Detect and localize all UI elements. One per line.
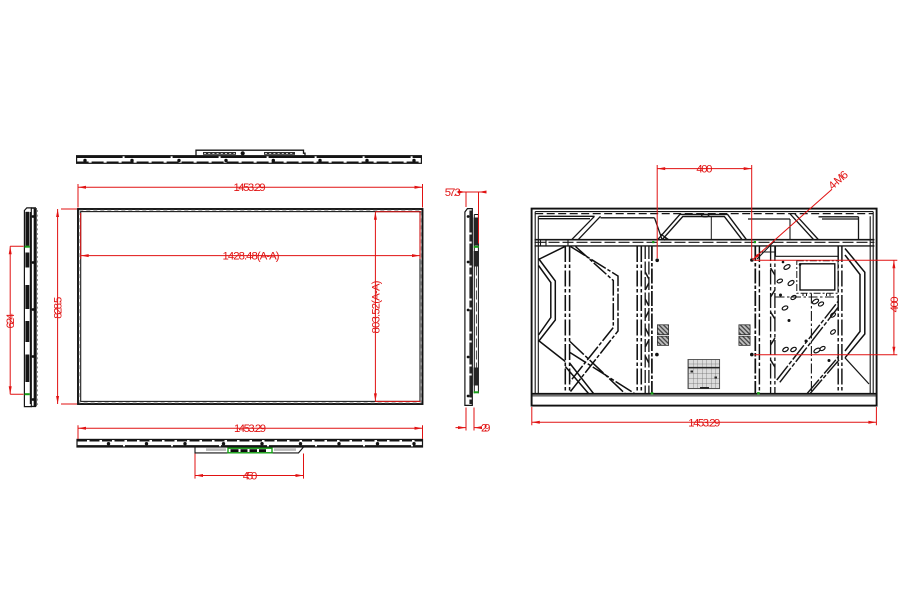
svg-text:57.3: 57.3 [445,187,461,199]
svg-text:29: 29 [481,423,491,435]
svg-text:1453.29: 1453.29 [688,417,720,429]
svg-text:828.5: 828.5 [52,297,64,319]
svg-text:803.52(A-A): 803.52(A-A) [370,280,382,333]
svg-text:400: 400 [696,164,712,176]
svg-text:1453.29: 1453.29 [234,182,266,194]
svg-text:624: 624 [5,314,17,329]
svg-text:1453.29: 1453.29 [234,423,266,435]
svg-text:400: 400 [889,296,900,312]
svg-text:1428.48(A-A): 1428.48(A-A) [223,251,280,263]
svg-text:450: 450 [243,471,258,483]
